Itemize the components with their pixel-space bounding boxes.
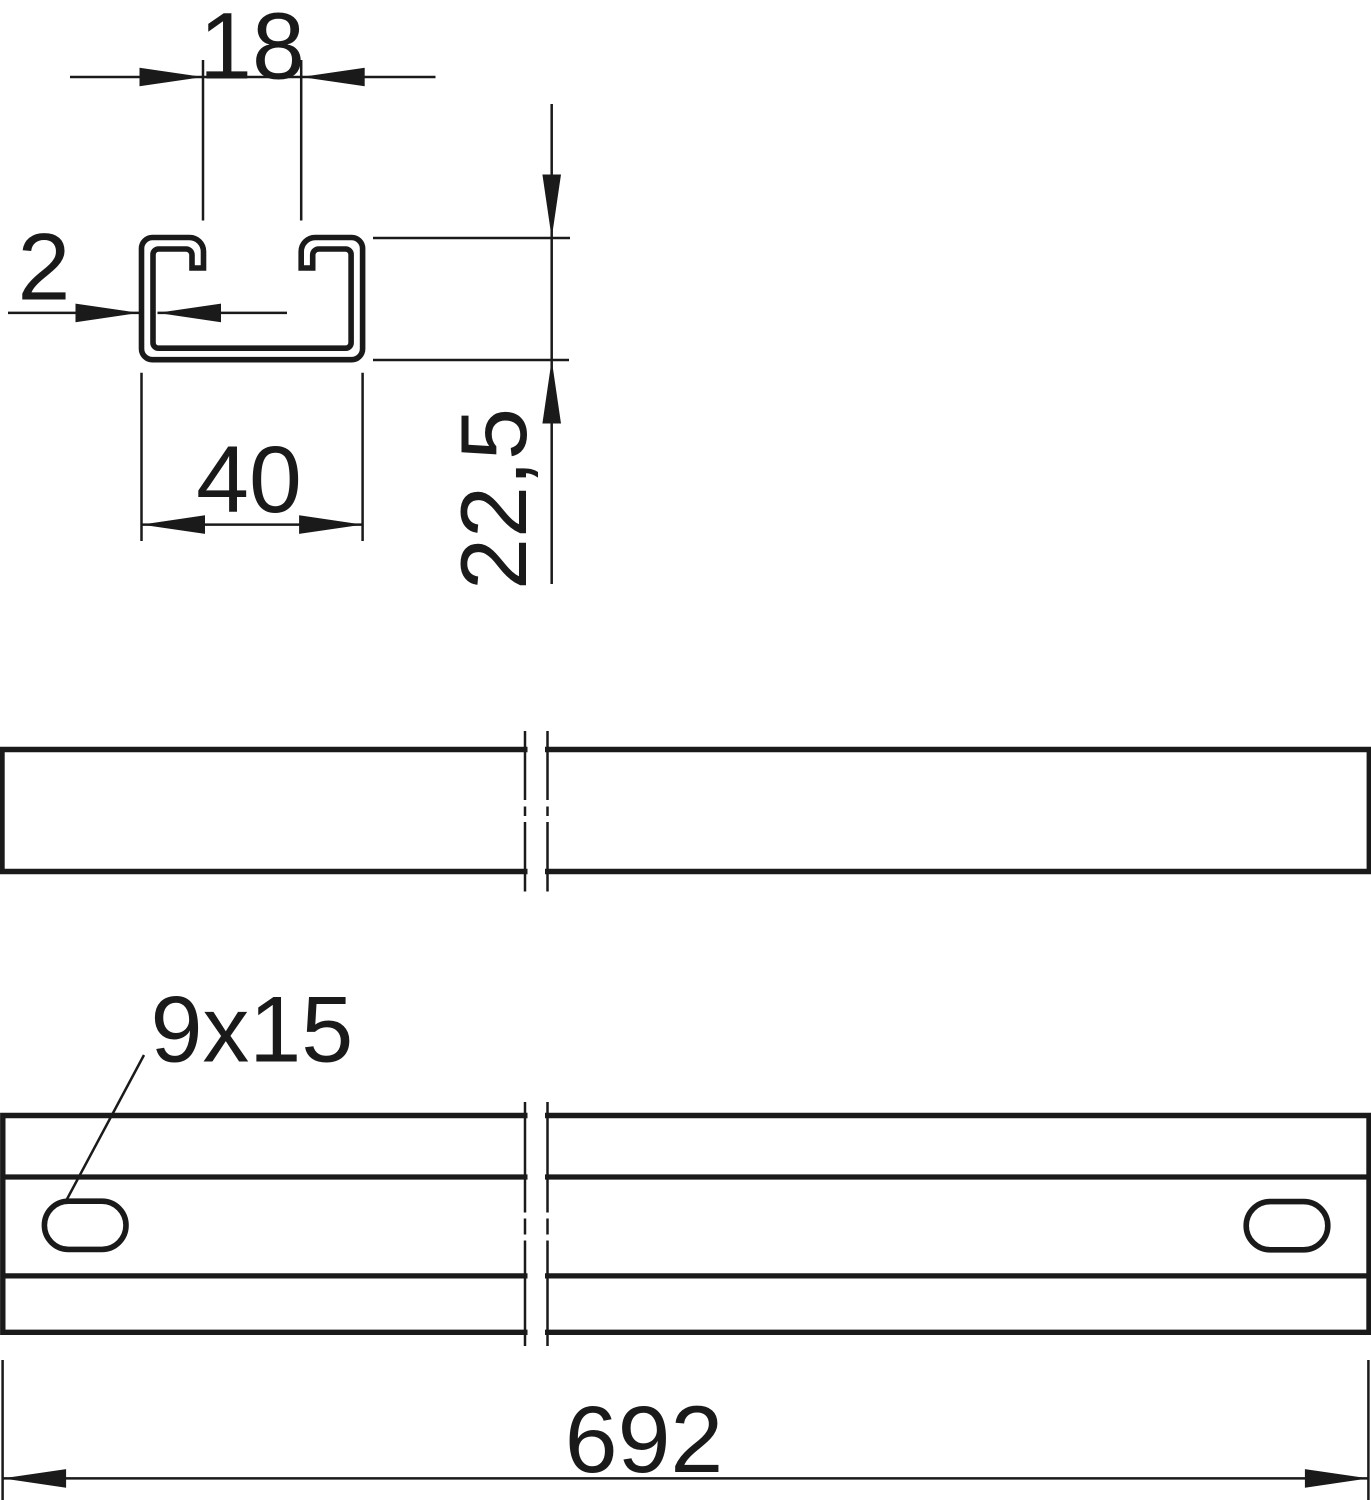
svg-text:9x15: 9x15 xyxy=(151,977,354,1082)
svg-text:40: 40 xyxy=(196,427,302,533)
svg-text:2: 2 xyxy=(18,215,71,321)
svg-text:18: 18 xyxy=(199,0,305,100)
svg-text:692: 692 xyxy=(565,1387,724,1493)
svg-text:22,5: 22,5 xyxy=(441,408,546,590)
